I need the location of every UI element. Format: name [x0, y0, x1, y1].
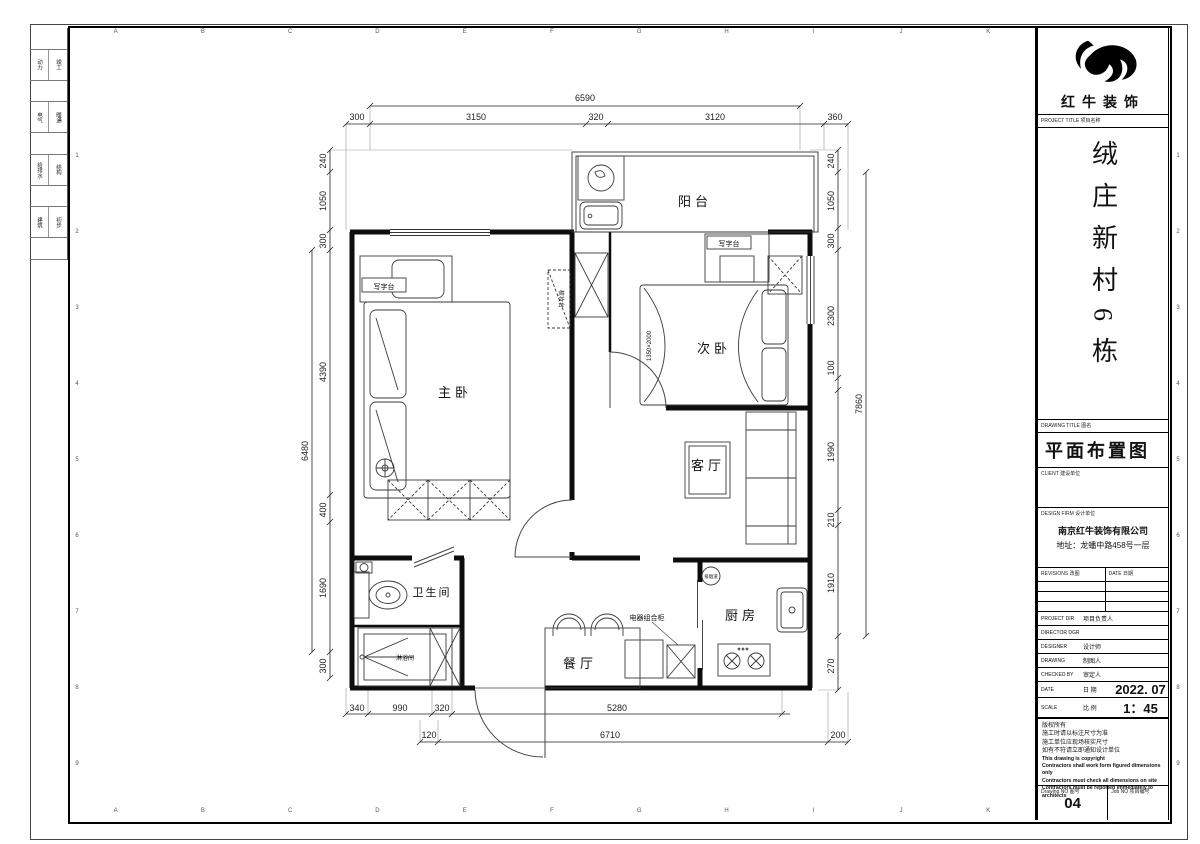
grid-letter: F [508, 29, 595, 39]
dim: 320 [434, 703, 449, 713]
grid-letter: B [159, 29, 246, 39]
personnel-label-en: PROJECT DIR [1038, 616, 1083, 622]
personnel-row: CHECKED BY审定人 [1038, 668, 1168, 682]
grid-letter: D [334, 29, 421, 39]
dim: 1050 [826, 191, 836, 211]
personnel-row: PROJECT DIR项目负责人 [1038, 612, 1168, 626]
label-dresser: 梳妆台 [557, 290, 565, 308]
room-label-master-bedroom: 主卧 [438, 385, 472, 400]
grid-letter: F [508, 808, 595, 818]
personnel-value: 1：45 [1113, 698, 1168, 717]
grid-number: 2 [1172, 194, 1184, 270]
personnel-table: PROJECT DIR项目负责人DIRECTOR DGRDESIGNER设计师D… [1038, 612, 1168, 718]
dim-right-total: 7860 [854, 394, 864, 414]
windows [390, 152, 818, 324]
notes-section: 版权所有施工时请以标注尺寸为准施工单位应现场核实尺寸如有不符请立即通知设计单位T… [1038, 718, 1168, 786]
grid-letter: C [247, 29, 334, 39]
drawing-sheet: 动力竣工电气暖通给排水结构建筑初步 ABCDEFGHIJK ABCDEFGHIJ… [0, 0, 1200, 844]
grid-letter: A [72, 808, 159, 818]
design-firm-section: DESIGN FIRM 设计单位 南京红牛装饰有限公司 地址：龙蟠中路458号一… [1038, 508, 1168, 568]
grid-number: 6 [71, 498, 83, 574]
grid-letter: J [857, 29, 944, 39]
grid-number: 8 [71, 650, 83, 726]
label-bed-size: 1350×2000 [647, 330, 653, 361]
strip-spacer [30, 133, 67, 155]
grid-number: 7 [71, 574, 83, 650]
label-desk-master: 写字台 [374, 282, 395, 291]
master-bed [364, 302, 510, 498]
grid-letter: H [683, 808, 770, 818]
dim: 300 [826, 233, 836, 248]
design-firm-name: 南京红牛装饰有限公司 [1038, 524, 1168, 537]
strip-spacer [30, 186, 67, 208]
grid-letter: E [421, 29, 508, 39]
strip-cell: 给排水 [30, 155, 49, 185]
floor-plan: 6590 300 3150 320 3120 360 240 1050 300 … [280, 80, 890, 770]
grid-letter: I [770, 29, 857, 39]
room-label-dining-room: 餐厅 [563, 656, 597, 671]
note-line: This drawing is copyright [1042, 756, 1168, 763]
design-firm-label: DESIGN FIRM 设计单位 [1038, 508, 1168, 517]
edge-strip: 动力竣工电气暖通给排水结构建筑初步 [30, 28, 68, 260]
grid-number: 1 [1172, 118, 1184, 194]
grid-number: 3 [1172, 270, 1184, 346]
strip-cell: 建筑 [30, 207, 49, 237]
dim-top-total: 6590 [575, 93, 595, 103]
title-block: 红牛装饰 PROJECT TITLE 项目名称 绒庄新村6栋 DRAWING T… [1038, 28, 1169, 820]
dim: 210 [826, 512, 836, 527]
dim: 100 [826, 360, 836, 375]
dim: 990 [392, 703, 407, 713]
grid-number: 5 [71, 422, 83, 498]
dim: 1050 [318, 191, 328, 211]
strip-cell: 电气 [30, 102, 49, 132]
label-flue: 排烟道 [704, 573, 718, 580]
note-line: 施工时请以标注尺寸为准 [1042, 730, 1168, 738]
revisions-date-label: DATE 日期 [1106, 568, 1168, 581]
grid-letters-top: ABCDEFGHIJK [72, 29, 1032, 39]
dimension-labels: 6590 300 3150 320 3120 360 240 1050 300 … [300, 93, 864, 740]
strip-cell: 暖通 [49, 102, 67, 132]
note-line: 如有不符请立即通知设计单位 [1042, 747, 1168, 755]
toilet [354, 572, 369, 618]
dim: 240 [318, 153, 328, 168]
dim: 5280 [607, 703, 627, 713]
revisions-label: REVISIONS 改图 [1038, 568, 1106, 581]
grid-letters-bottom: ABCDEFGHIJK [72, 808, 1032, 818]
grid-letter: J [857, 808, 944, 818]
dim: 1990 [826, 442, 836, 462]
dim: 300 [349, 112, 364, 122]
grid-letter: A [72, 29, 159, 39]
personnel-label-en: CHECKED BY [1038, 672, 1083, 678]
personnel-label-cn: 日 期 [1083, 685, 1113, 694]
dim: 240 [826, 153, 836, 168]
dim: 300 [318, 233, 328, 248]
grid-letter: E [421, 808, 508, 818]
grid-letter: H [683, 29, 770, 39]
grid-letter: D [334, 808, 421, 818]
personnel-label-en: DESIGNER [1038, 644, 1083, 650]
room-label-kitchen: 厨房 [725, 608, 759, 623]
kitchen-sink [777, 588, 807, 632]
strip-row: 电气暖通 [30, 102, 67, 133]
personnel-label-cn: 制图人 [1083, 656, 1113, 665]
brand-name: 红牛装饰 [1061, 92, 1145, 112]
logo-section: 红牛装饰 [1038, 28, 1168, 115]
dim: 270 [826, 658, 836, 673]
strip-cell: 结构 [49, 155, 67, 185]
grid-numbers-right: 123456789 [1172, 118, 1184, 802]
personnel-row: DATE日 期2022. 07 [1038, 682, 1168, 698]
dim: 4390 [318, 362, 328, 382]
grid-letter: B [159, 808, 246, 818]
personnel-label-cn: 项目负责人 [1083, 614, 1113, 623]
master-door-arc [515, 500, 572, 557]
dim: 1910 [826, 573, 836, 593]
dim: 1690 [318, 578, 328, 598]
grid-letter: G [596, 29, 683, 39]
bathroom-door-leaf [414, 551, 454, 567]
personnel-label-en: SCALE [1038, 705, 1083, 711]
grid-number: 6 [1172, 498, 1184, 574]
dim: 200 [830, 730, 845, 740]
note-line: Contractors must check all dimensions on… [1042, 778, 1168, 785]
drawing-no-value: 04 [1038, 795, 1107, 820]
strip-row: 给排水结构 [30, 155, 67, 186]
strip-spacer [30, 81, 67, 103]
drawing-title: 平面布置图 [1038, 437, 1150, 463]
dim: 320 [588, 112, 603, 122]
note-line: 施工单位应现场核实尺寸 [1042, 739, 1168, 747]
grid-letter: K [945, 29, 1032, 39]
label-appliance-cabinet: 电器组合柜 [630, 613, 665, 622]
grid-number: 2 [71, 194, 83, 270]
numbers-section: Drawing NO 图号 04 Job NO 项目编号 [1038, 786, 1168, 820]
doors [414, 352, 703, 758]
job-no-cell: Job NO 项目编号 [1108, 786, 1168, 820]
dim-left-total: 6480 [300, 441, 310, 461]
personnel-label-en: DATE [1038, 687, 1083, 693]
project-title-section: 绒庄新村6栋 [1038, 128, 1168, 420]
counter [625, 640, 663, 678]
project-title-label: PROJECT TITLE 项目名称 [1038, 115, 1168, 124]
room-labels: 阳台 次卧 主卧 客厅 卫生间 餐厅 厨房 淋浴间 写字台 写字台 梳妆台 电器… [374, 194, 760, 671]
grid-letter: K [945, 808, 1032, 818]
grid-number: 7 [1172, 574, 1184, 650]
grid-number: 9 [71, 726, 83, 802]
project-title: 绒庄新村6栋 [1085, 128, 1122, 419]
personnel-row: DRAWING制图人 [1038, 654, 1168, 668]
room-label-bathroom: 卫生间 [413, 585, 452, 599]
strip-cell: 动力 [30, 50, 49, 80]
grid-letter: G [596, 808, 683, 818]
dim: 2300 [826, 306, 836, 326]
grid-number: 3 [71, 270, 83, 346]
master-wardrobe [388, 480, 510, 520]
strip-cell: 初步 [49, 207, 67, 237]
personnel-row: SCALE比 例1：45 [1038, 698, 1168, 717]
room-label-balcony: 阳台 [678, 194, 712, 209]
personnel-label-cn: 审定人 [1083, 670, 1113, 679]
drawing-no-cell: Drawing NO 图号 04 [1038, 786, 1108, 820]
room-label-second-bedroom: 次卧 [697, 341, 731, 356]
dim: 3150 [466, 112, 486, 122]
dim: 3120 [705, 112, 725, 122]
personnel-label-en: DIRECTOR DGR [1038, 630, 1083, 636]
client-label: CLIENT 建设单位 [1038, 468, 1168, 477]
dim: 360 [827, 112, 842, 122]
job-no-label: Job NO 项目编号 [1108, 786, 1168, 795]
strip-row: 动力竣工 [30, 50, 67, 81]
dim: 340 [349, 703, 364, 713]
note-line: Contractors shall work form figured dime… [1042, 763, 1168, 778]
grid-number: 4 [1172, 346, 1184, 422]
drawing-title-label: DRAWING TITLE 图名 [1038, 420, 1168, 429]
personnel-label-en: DRAWING [1038, 658, 1083, 664]
dimension-lines [309, 103, 869, 745]
grid-number: 4 [71, 346, 83, 422]
strip-spacer [30, 238, 67, 260]
strip-row: 建筑初步 [30, 207, 67, 238]
balcony-desk-chair [720, 256, 754, 282]
revision-row [1038, 582, 1168, 592]
personnel-label-cn: 比 例 [1083, 703, 1113, 712]
dim: 400 [318, 502, 328, 517]
grid-number: 9 [1172, 726, 1184, 802]
strip-cell: 竣工 [49, 50, 67, 80]
dim: 120 [421, 730, 436, 740]
revision-row [1038, 602, 1168, 611]
drawing-no-label: Drawing NO 图号 [1038, 786, 1107, 795]
grid-number: 1 [71, 118, 83, 194]
personnel-value: 2022. 07 [1113, 682, 1168, 697]
grid-numbers-left: 123456789 [71, 118, 83, 802]
note-line: 版权所有 [1042, 722, 1168, 730]
grid-letter: C [247, 808, 334, 818]
design-firm-address: 地址：龙蟠中路458号一层 [1038, 540, 1168, 551]
personnel-row: DIRECTOR DGR [1038, 626, 1168, 640]
grid-number: 5 [1172, 422, 1184, 498]
grid-number: 8 [1172, 650, 1184, 726]
dim: 6710 [600, 730, 620, 740]
brand-logo-icon [1064, 39, 1142, 91]
washing-machine [578, 156, 624, 200]
entry-door-arc [475, 690, 543, 757]
grid-letter: I [770, 808, 857, 818]
strip-spacer [30, 28, 67, 50]
personnel-row: DESIGNER设计师 [1038, 640, 1168, 654]
label-desk-balcony: 写字台 [719, 239, 740, 248]
dim: 300 [318, 658, 328, 673]
room-label-living-room: 客厅 [691, 458, 725, 473]
revisions-table: REVISIONS 改图 DATE 日期 [1038, 568, 1168, 612]
revision-row [1038, 592, 1168, 602]
personnel-label-cn: 设计师 [1083, 642, 1113, 651]
room-label-shower: 淋浴间 [396, 654, 414, 662]
